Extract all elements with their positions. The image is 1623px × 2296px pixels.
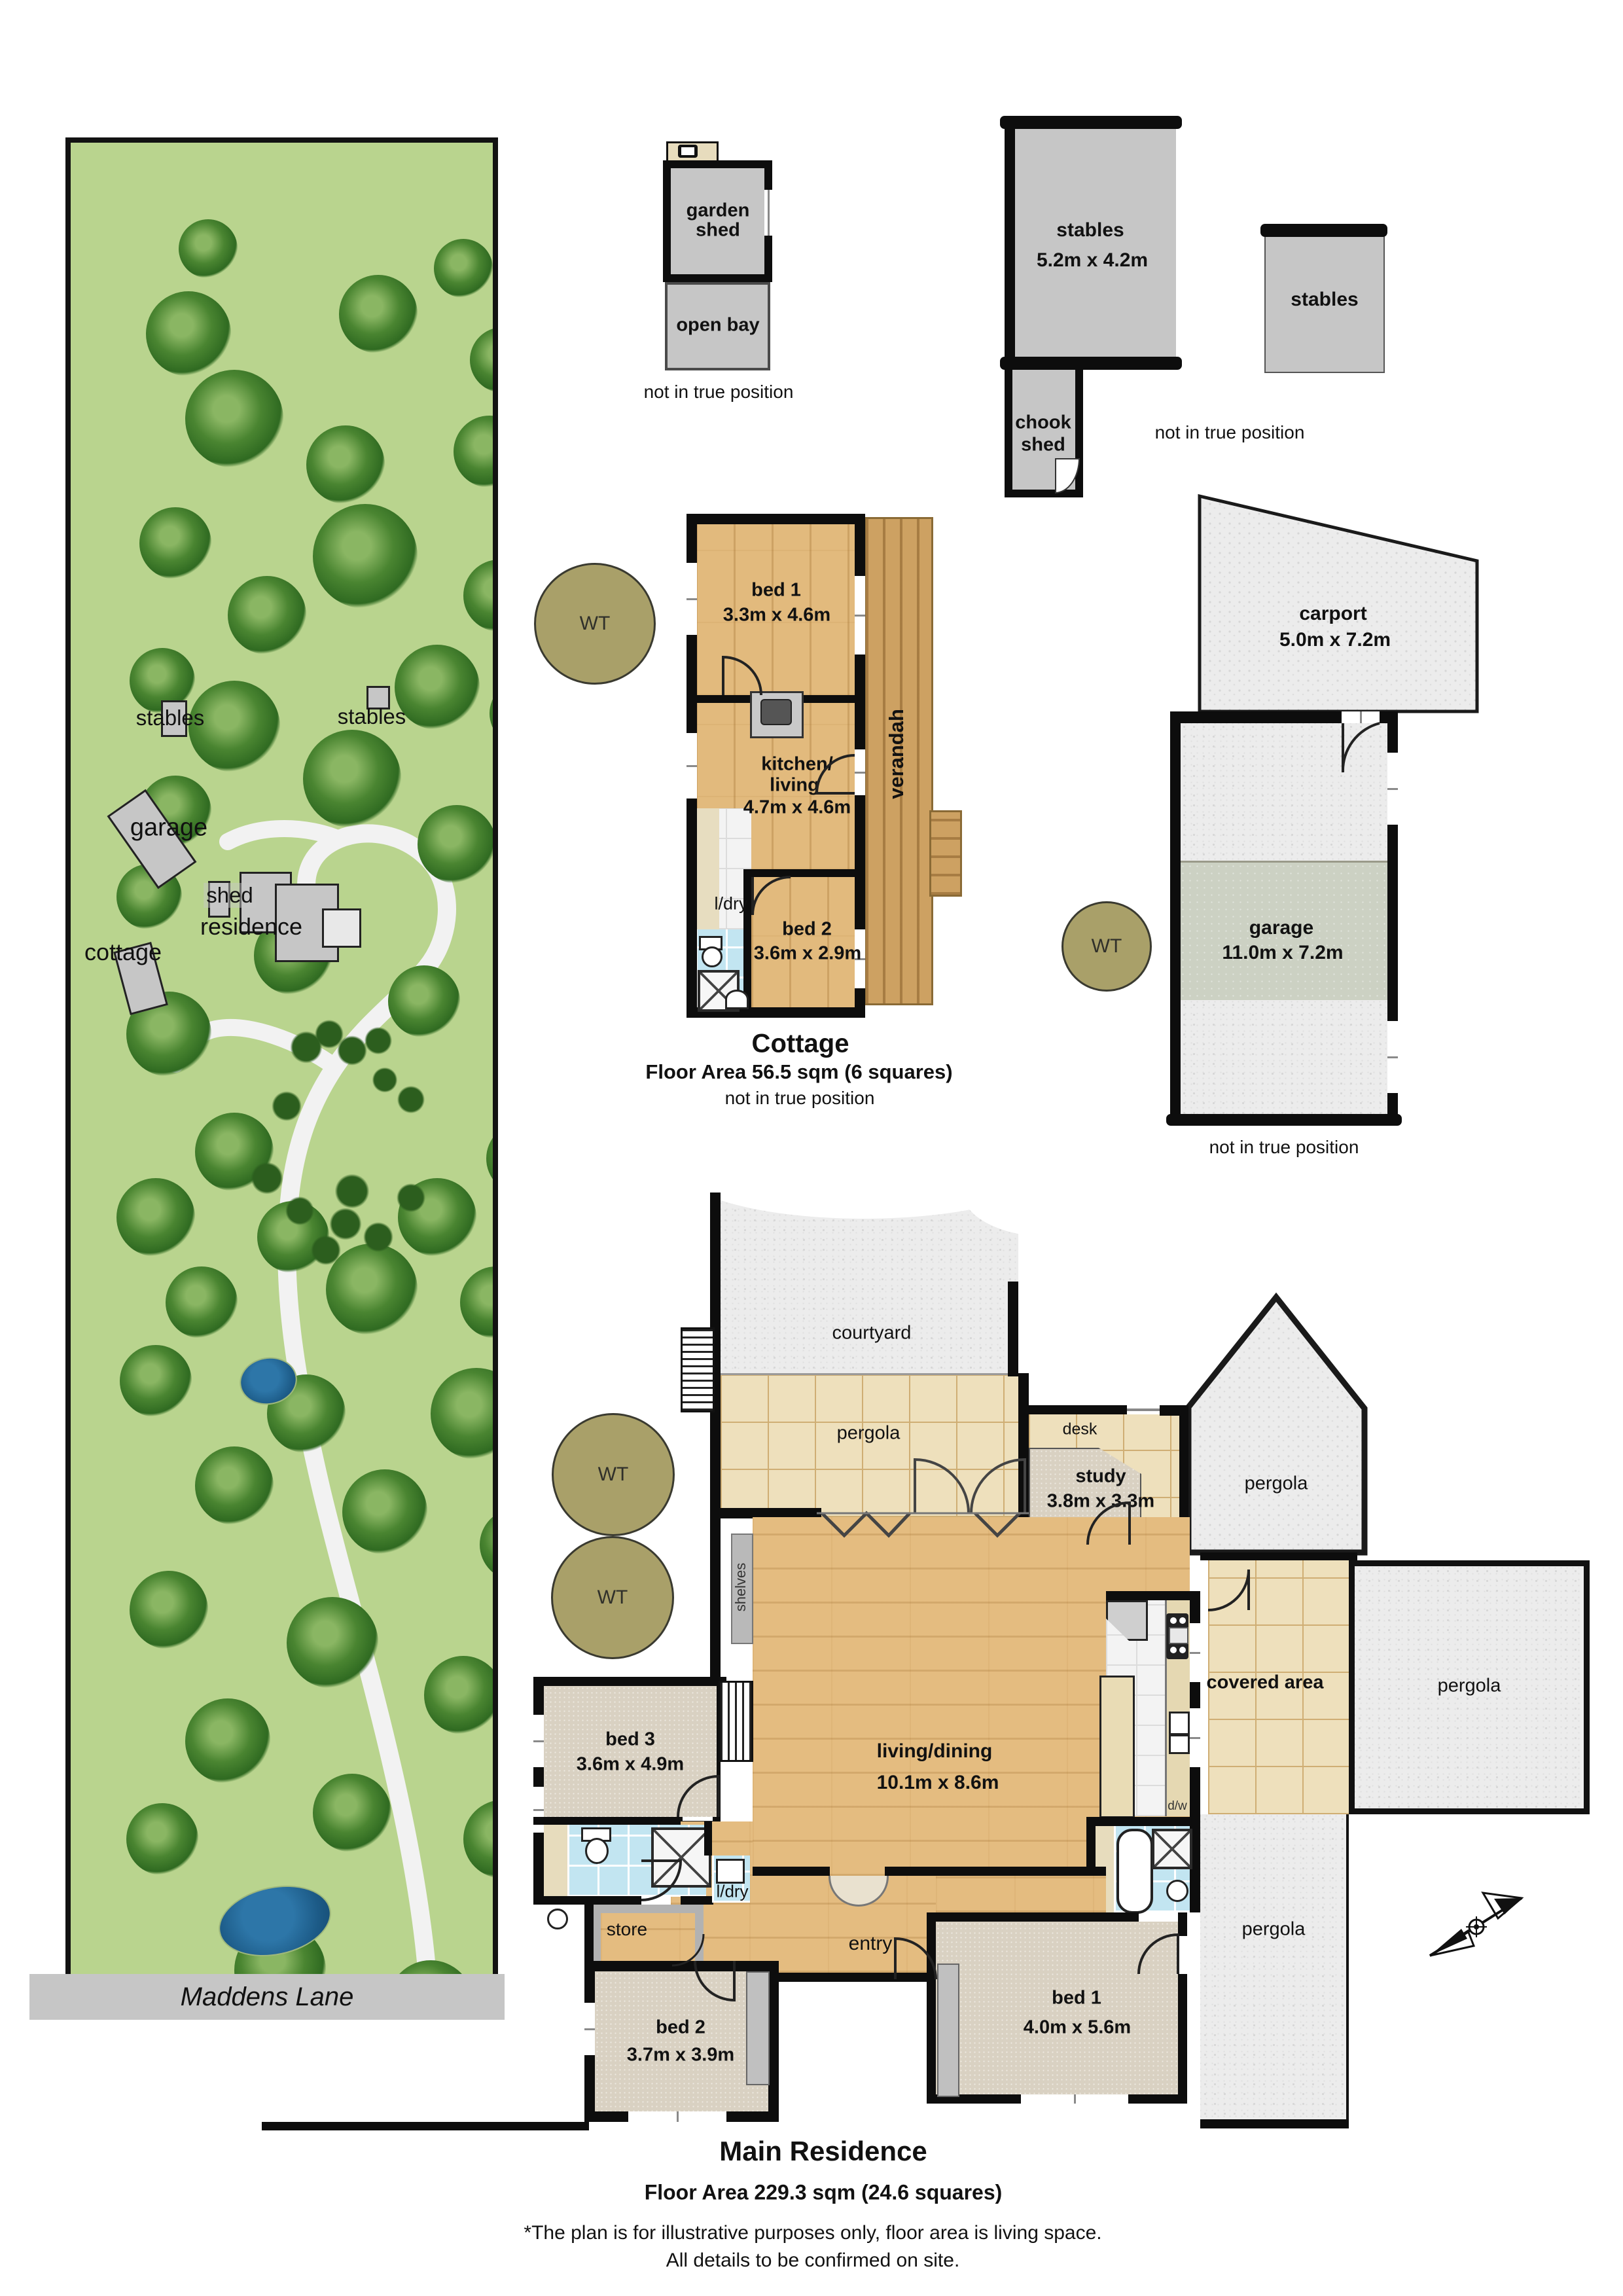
bed2-dims: 3.7m x 3.9m [627, 2045, 734, 2066]
bed1-dims: 4.0m x 5.6m [1024, 2017, 1131, 2039]
living-label: living/dining [877, 1740, 993, 1763]
wall [681, 1896, 713, 1905]
garage-label: garage [1249, 917, 1313, 939]
stove-burner [1170, 1617, 1177, 1624]
bed3-window [533, 1715, 544, 1767]
residence-title: Main Residence [719, 2136, 927, 2167]
bed2-window [584, 2003, 595, 2055]
wall [927, 1912, 936, 1939]
garage-water-tank: WT [1061, 901, 1152, 992]
wall [768, 1961, 779, 2122]
wall [533, 1817, 681, 1825]
entry-floor-east [936, 1876, 1106, 1912]
study-label: study [1075, 1466, 1126, 1488]
stove-burner [1179, 1617, 1186, 1624]
residence-water-tank: WT [552, 1413, 675, 1536]
wall [753, 1867, 830, 1876]
bath-icon [1116, 1829, 1153, 1914]
covered-area-label: covered area [1207, 1672, 1324, 1694]
wall [704, 1821, 712, 1856]
washer-icon [716, 1859, 745, 1884]
courtyard-label: courtyard [832, 1323, 912, 1344]
wall [1018, 1373, 1029, 1517]
pergola-se [1200, 1814, 1349, 2127]
wall [533, 1677, 726, 1686]
fence-line [262, 2122, 589, 2130]
garage-wall [1170, 711, 1181, 1124]
wt-label: WT [597, 1587, 628, 1609]
bed1-window [1021, 2094, 1128, 2104]
w all [1178, 1912, 1187, 1936]
garage-window [1387, 1021, 1398, 1093]
wall [1106, 1591, 1200, 1600]
basin-icon [1166, 1880, 1188, 1902]
stove-burner [1170, 1647, 1177, 1653]
ldry-label: l/dry [716, 1882, 748, 1902]
garage-note: not in true position [1209, 1137, 1359, 1158]
wall [936, 1912, 1139, 1922]
oven-icon [1169, 1627, 1188, 1644]
pergola-se-label: pergola [1242, 1919, 1306, 1941]
toilet-icon-bowl [585, 1838, 609, 1864]
kitchen-window [1190, 1708, 1200, 1767]
wall [779, 1973, 936, 1982]
kitchen-window [1190, 1623, 1200, 1682]
study-dims: 3.8m x 3.3m [1047, 1491, 1154, 1513]
wall [1200, 2119, 1349, 2128]
sink-icon [1169, 1734, 1190, 1754]
wall [1029, 1405, 1127, 1414]
carport-label: carport [1299, 603, 1366, 625]
disclaimer-line2: All details to be confirmed on site. [666, 2250, 960, 2272]
bed2-robe [746, 1971, 770, 2085]
wall [1008, 1282, 1018, 1376]
dw-label: d/w [1168, 1799, 1187, 1814]
disclaimer-line1: *The plan is for illustrative purposes o… [524, 2222, 1101, 2244]
bed1-label: bed 1 [1052, 1988, 1101, 2009]
garage-yard-upper [1179, 722, 1389, 861]
basin-icon [547, 1909, 568, 1929]
entry-label: entry [849, 1933, 893, 1955]
residence-area: Floor Area 229.3 sqm (24.6 squares) [645, 2181, 1003, 2205]
kitchen-island [1099, 1676, 1135, 1818]
wt-label: WT [1092, 935, 1122, 958]
store-label: store [607, 1919, 647, 1940]
pergola-top-label: pergola [837, 1423, 901, 1444]
pergola-east-label: pergola [1438, 1676, 1501, 1697]
bed2-floor [595, 1971, 768, 2111]
courtyard-wave [962, 1145, 1139, 1237]
wall [927, 1939, 936, 2104]
shower-icon [651, 1827, 711, 1888]
sink-icon [1169, 1712, 1190, 1735]
floor-plan-page: stables stables garage shed residence co… [0, 0, 1623, 2296]
garage-wall [1166, 1114, 1402, 1126]
wall [533, 1896, 641, 1905]
desk-label: desk [1063, 1420, 1097, 1439]
shelves-label: shelves [732, 1563, 749, 1612]
bed2-window [628, 2111, 726, 2122]
bed3-robe [719, 1681, 753, 1762]
bed3-window [533, 1787, 544, 1833]
shower-icon [1152, 1829, 1192, 1869]
wall [584, 1961, 779, 1971]
bed2-label: bed 2 [656, 2017, 705, 2039]
garage-window [1387, 753, 1398, 825]
entry-floor [671, 1876, 936, 1973]
window-bay [681, 1327, 715, 1412]
wall [1086, 1817, 1200, 1826]
pergola-ne-label: pergola [1245, 1473, 1308, 1495]
garage-dims: 11.0m x 7.2m [1222, 942, 1343, 964]
stove-burner [1179, 1647, 1186, 1653]
wall [1178, 1974, 1187, 2104]
bed3-label: bed 3 [605, 1729, 655, 1751]
wall [1200, 1552, 1357, 1560]
carport-dims: 5.0m x 7.2m [1279, 629, 1391, 651]
living-dims: 10.1m x 8.6m [877, 1772, 999, 1794]
bath3-vanity [544, 1825, 567, 1897]
bed3-dims: 3.6m x 4.9m [577, 1754, 684, 1776]
pergola-top [721, 1375, 1018, 1517]
residence-water-tank: WT [551, 1536, 674, 1659]
bed1-robe [937, 1964, 959, 2097]
wt-label: WT [598, 1463, 629, 1486]
garage-yard-lower [1179, 1000, 1389, 1115]
wall [885, 1867, 1106, 1876]
bed3-floor [544, 1686, 717, 1817]
garage-door [1342, 711, 1380, 723]
